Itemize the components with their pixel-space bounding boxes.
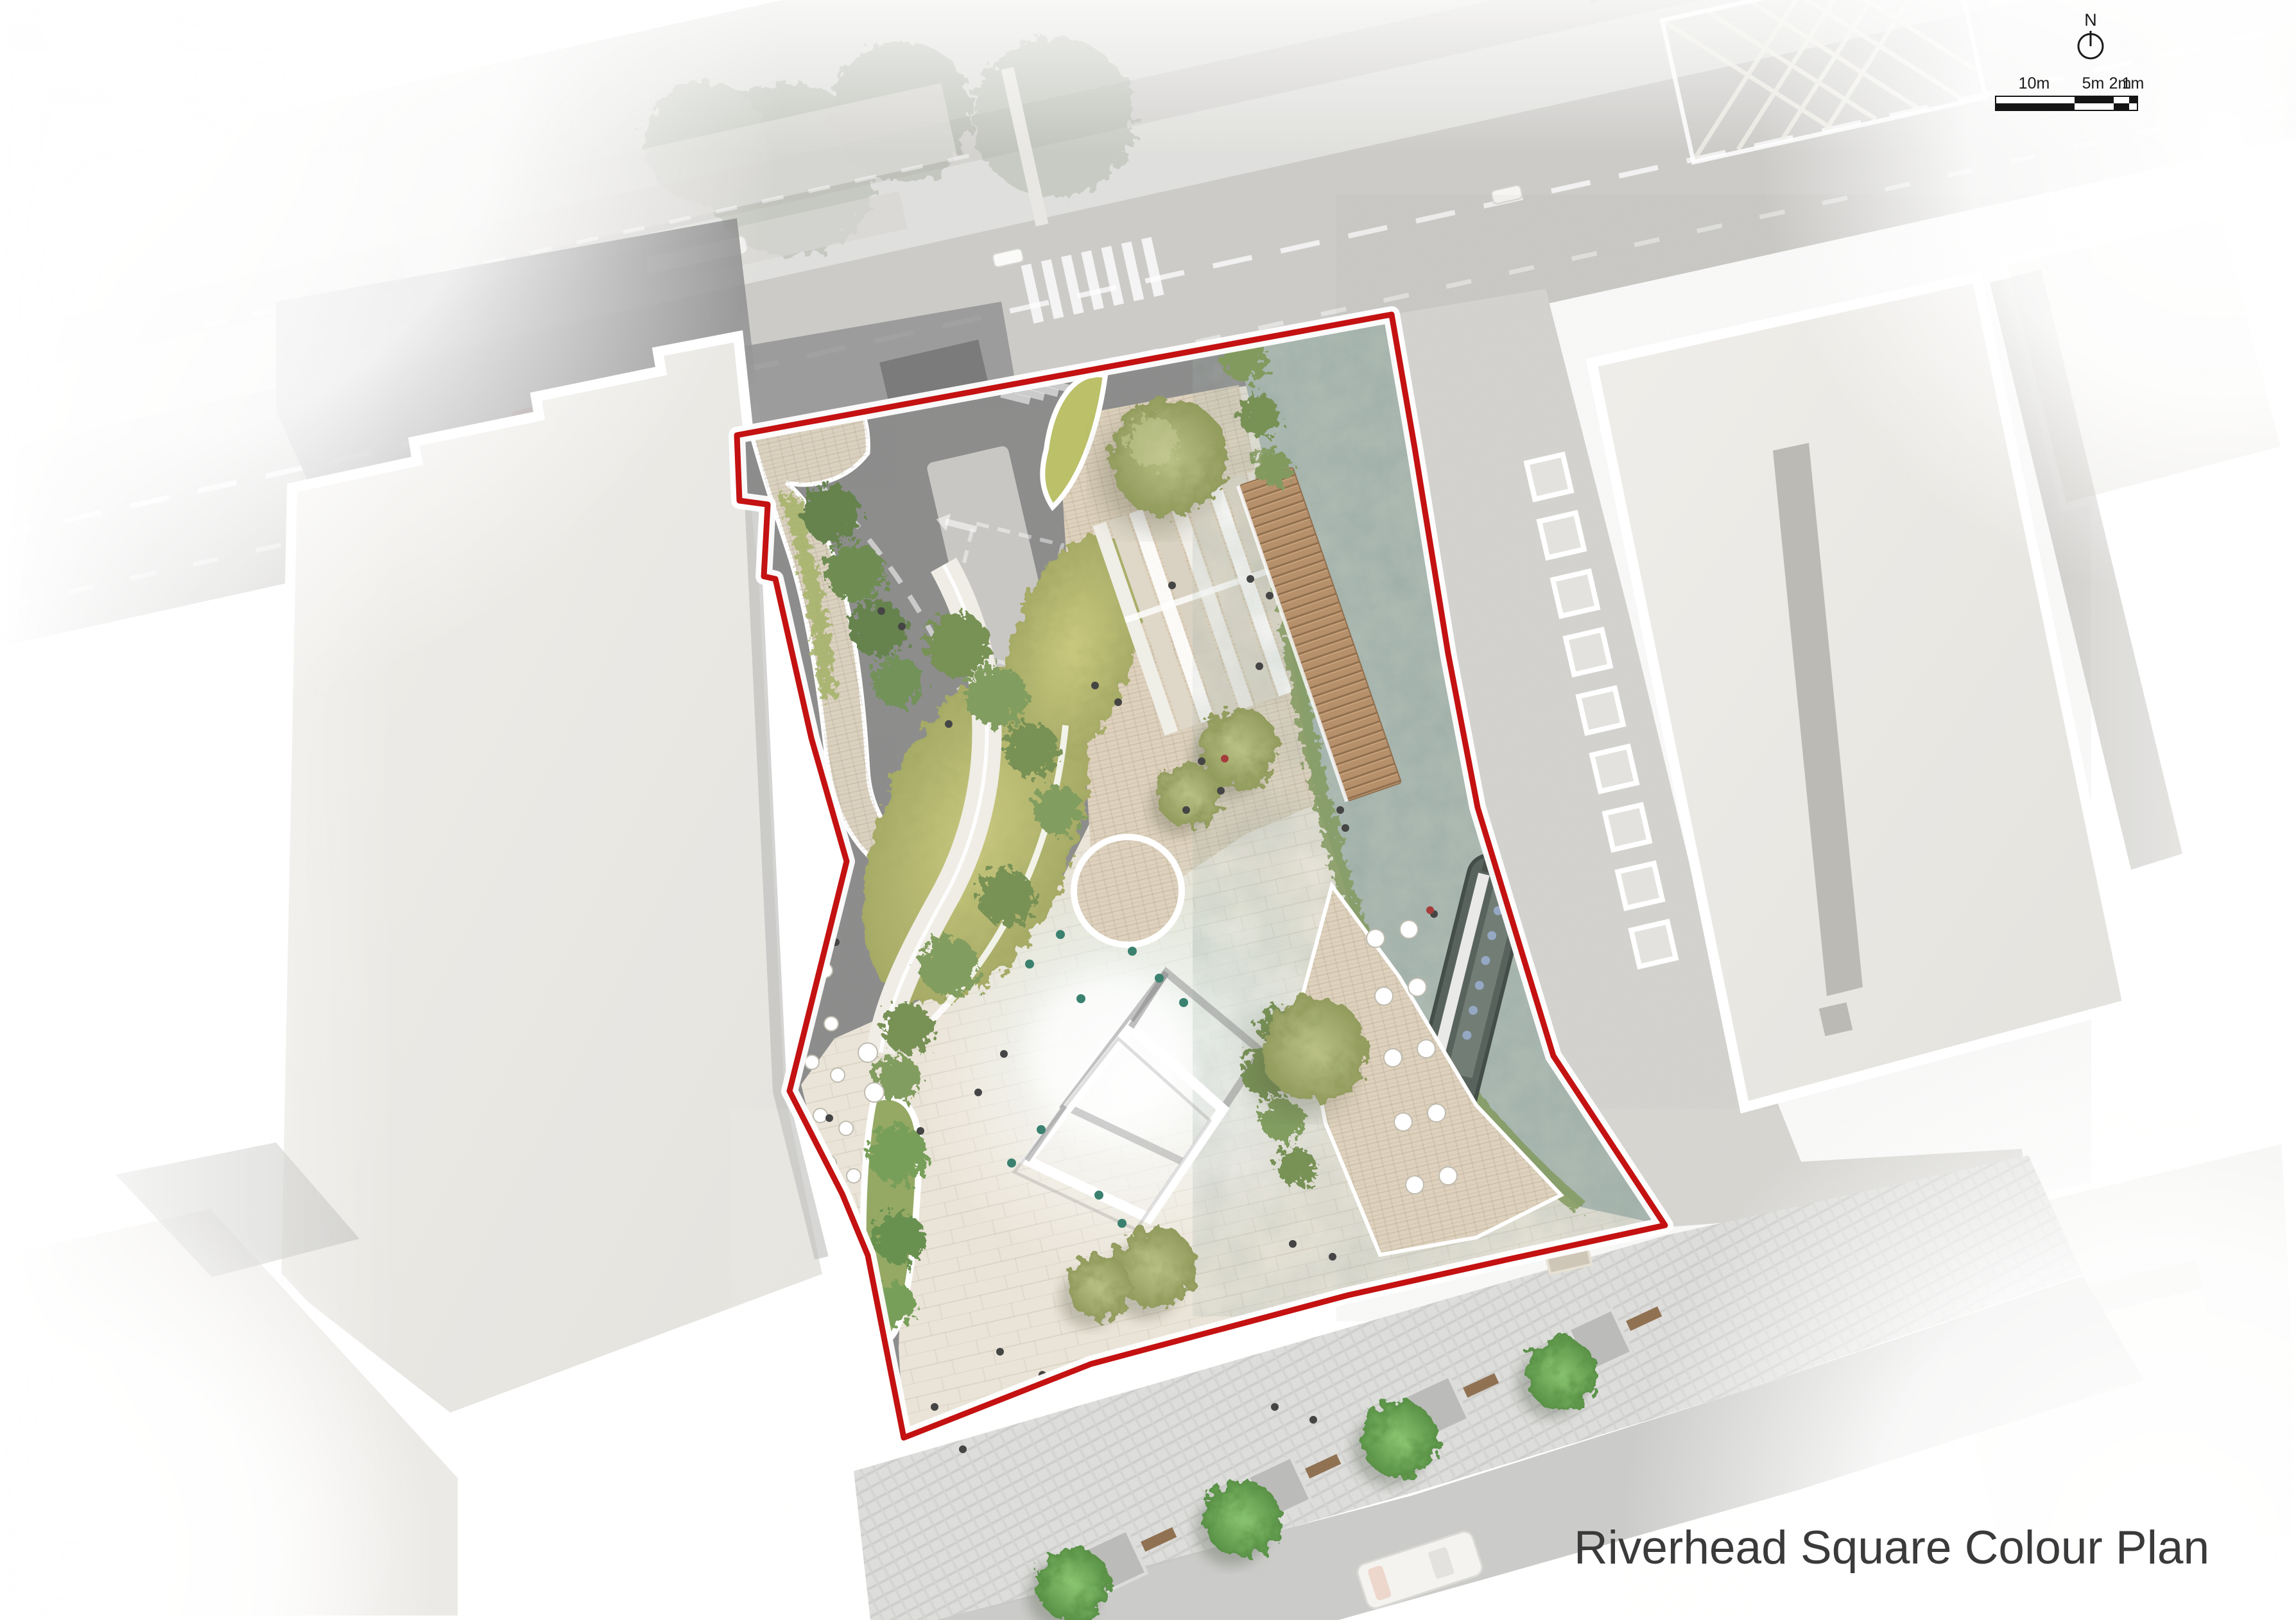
- scale-bar-graphic: [1995, 96, 2138, 111]
- north-label: N: [2062, 10, 2119, 30]
- colour-plan-page: BUS: [0, 0, 2296, 1620]
- scale-label-10m: 10m: [2019, 74, 2050, 93]
- scale-bar-labels: 10m 5m 2m 1m: [1995, 74, 2138, 94]
- scale-label-1m: 1m: [2122, 74, 2145, 93]
- scale-bar: 10m 5m 2m 1m: [1995, 74, 2140, 117]
- north-arrow: N: [2062, 10, 2119, 65]
- north-arrow-icon: [2076, 30, 2105, 62]
- vignette: [0, 0, 2296, 1620]
- site-plan-canvas: BUS: [0, 0, 2296, 1620]
- scale-label-5m: 5m: [2082, 74, 2105, 93]
- plan-title: Riverhead Square Colour Plan: [1574, 1521, 2209, 1574]
